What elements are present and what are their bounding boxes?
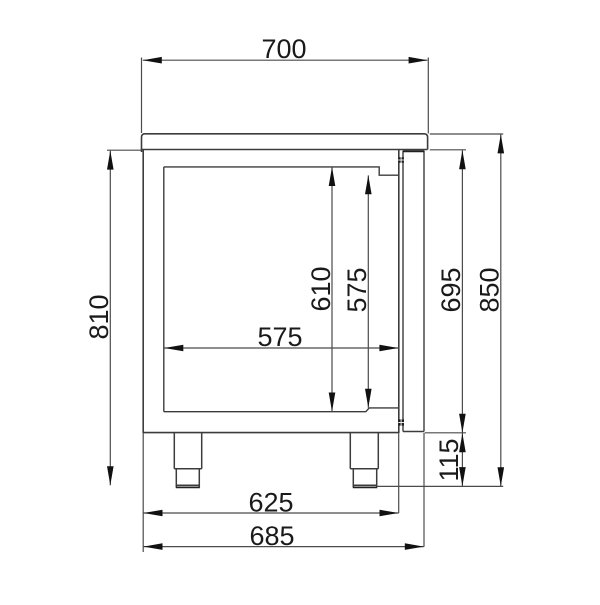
svg-text:850: 850 (475, 267, 505, 312)
svg-text:610: 610 (306, 266, 336, 311)
svg-text:625: 625 (248, 487, 293, 517)
svg-text:575: 575 (257, 322, 302, 352)
svg-text:685: 685 (249, 521, 294, 551)
svg-text:810: 810 (84, 294, 114, 339)
svg-text:695: 695 (436, 267, 466, 312)
svg-text:575: 575 (342, 267, 372, 312)
svg-text:115: 115 (434, 438, 464, 481)
svg-text:700: 700 (261, 34, 306, 64)
